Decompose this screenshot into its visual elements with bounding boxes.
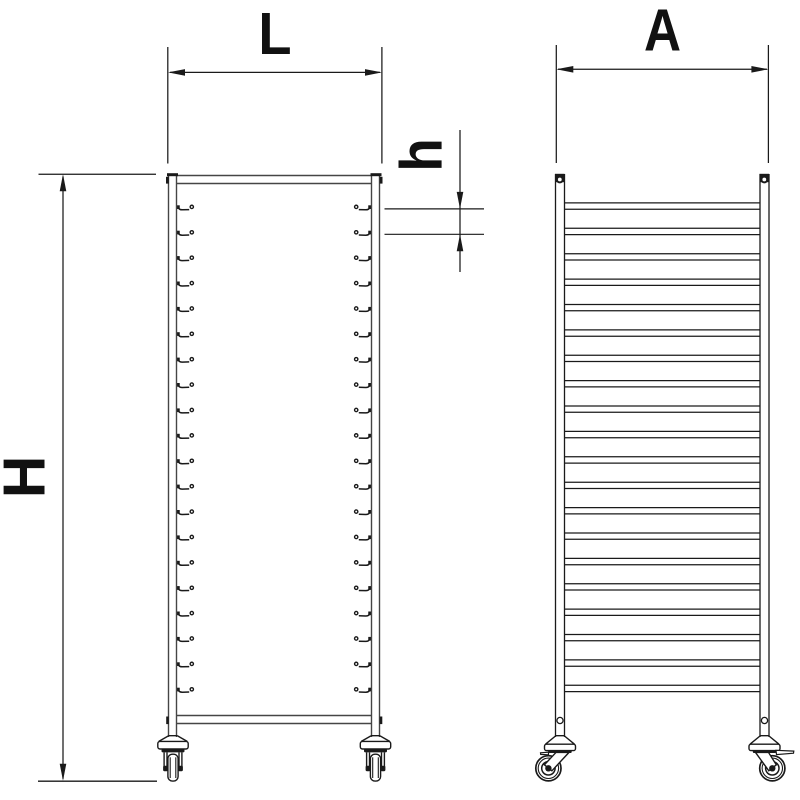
svg-text:A: A bbox=[644, 0, 681, 64]
svg-text:h: h bbox=[389, 138, 455, 172]
svg-text:L: L bbox=[258, 2, 291, 68]
svg-text:H: H bbox=[0, 456, 58, 499]
